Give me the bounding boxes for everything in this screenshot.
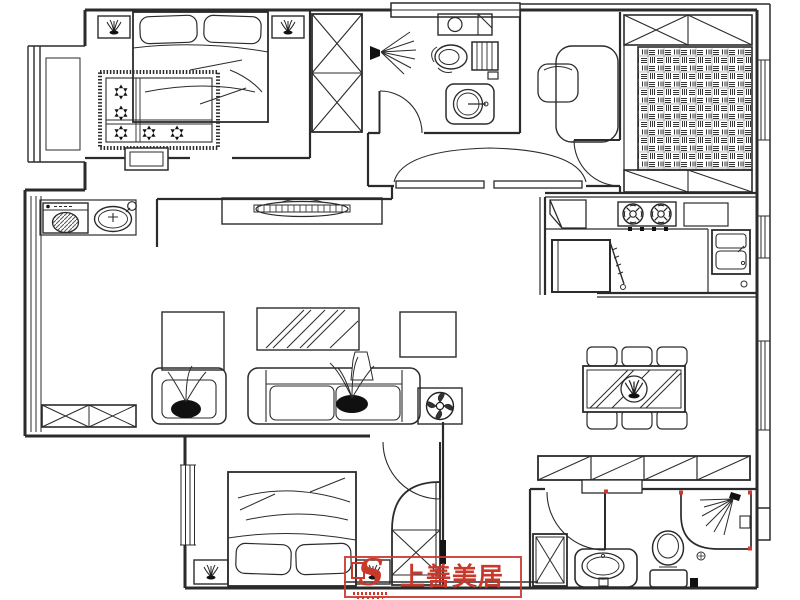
kitchen (550, 200, 750, 292)
logo-subtext-line-2 (357, 597, 383, 599)
kitchen-sink (712, 230, 750, 287)
bay-window (28, 46, 85, 162)
brand-logo-icon: S (351, 557, 395, 597)
bathroom-top-door (380, 91, 423, 133)
side-cabinet (162, 312, 224, 370)
armchair (152, 366, 226, 424)
laundry-x-cabinet (42, 405, 136, 427)
coffee-table (400, 312, 456, 357)
right-wall-windows (757, 60, 770, 430)
dining-chairs-top (587, 347, 687, 366)
double-bed (133, 12, 268, 122)
bottom-cabinet (624, 170, 752, 192)
dining-table (583, 366, 685, 412)
hall-wardrobe (312, 14, 362, 132)
corner-shelf (550, 200, 586, 228)
worktop-box (684, 203, 728, 226)
toilet (432, 42, 498, 79)
bathroom-top (370, 14, 498, 124)
tatami-room-door (574, 140, 620, 186)
area-rug (257, 308, 359, 350)
double-bed-2 (228, 472, 356, 586)
sofa-plant (330, 352, 374, 413)
master-bedroom (98, 12, 304, 170)
console-desk (556, 46, 618, 142)
bedroom2-window-band (180, 465, 196, 545)
fan-side-table (418, 388, 462, 424)
double-entry-door (394, 148, 586, 188)
dining-room (538, 347, 750, 493)
floor-plan-drawing (0, 0, 800, 600)
bedroom2-door (383, 442, 440, 499)
refrigerator (552, 240, 626, 292)
nightstand-right (272, 16, 304, 38)
tatami-room (624, 15, 752, 192)
toilet-2 (650, 531, 698, 587)
bathroom-bottom-door (547, 492, 605, 550)
bathroom2-x-cabinet (533, 534, 567, 586)
entry-foyer (538, 46, 618, 142)
shower-head-icon (370, 32, 416, 74)
chair (538, 64, 578, 102)
television (254, 199, 350, 217)
sofa (248, 352, 420, 424)
star-rug (100, 72, 218, 148)
bathroom-top-window (391, 3, 520, 17)
nightstand-left (98, 16, 130, 38)
logo-subtext-line (353, 592, 389, 595)
laundry-basin (95, 202, 137, 232)
dressing-stool (125, 148, 168, 170)
top-cabinet (624, 15, 752, 45)
brand-watermark: S 上善美居 (344, 556, 522, 598)
washing-machine (43, 203, 88, 233)
logo-letter: S (358, 553, 384, 593)
woven-mat-floor (638, 47, 752, 170)
laundry-balcony (40, 200, 136, 427)
round-pedestal-basin (446, 84, 494, 124)
brand-name: 上善美居 (400, 557, 504, 597)
nightstand-2-left (194, 560, 228, 584)
gas-stove (618, 201, 676, 231)
vanity-basin (575, 549, 637, 587)
floor-plan-page: S 上善美居 (0, 0, 800, 600)
sideboard (538, 456, 750, 493)
living-room (152, 198, 462, 424)
